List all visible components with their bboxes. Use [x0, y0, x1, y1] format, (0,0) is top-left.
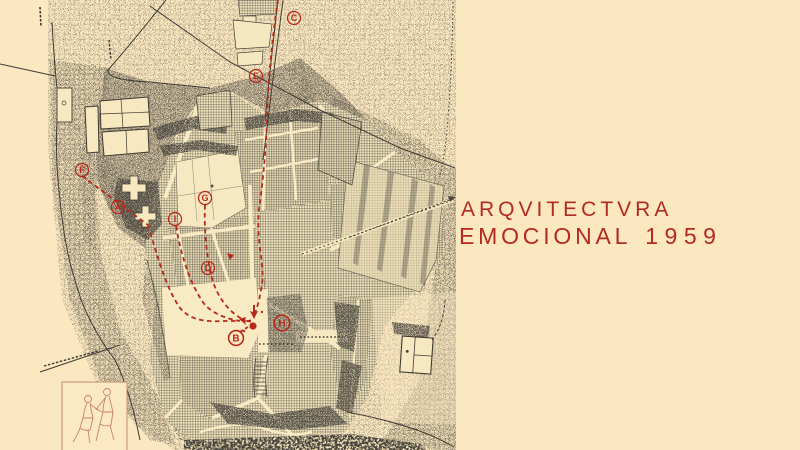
svg-text:E: E	[253, 71, 259, 81]
svg-text:D: D	[205, 263, 212, 273]
svg-text:A: A	[115, 202, 122, 212]
svg-text:I: I	[174, 214, 177, 224]
svg-text:F: F	[79, 165, 85, 175]
svg-text:H: H	[278, 319, 285, 330]
svg-text:C: C	[291, 13, 298, 23]
svg-text:G: G	[201, 193, 208, 203]
svg-text:B: B	[232, 333, 239, 344]
